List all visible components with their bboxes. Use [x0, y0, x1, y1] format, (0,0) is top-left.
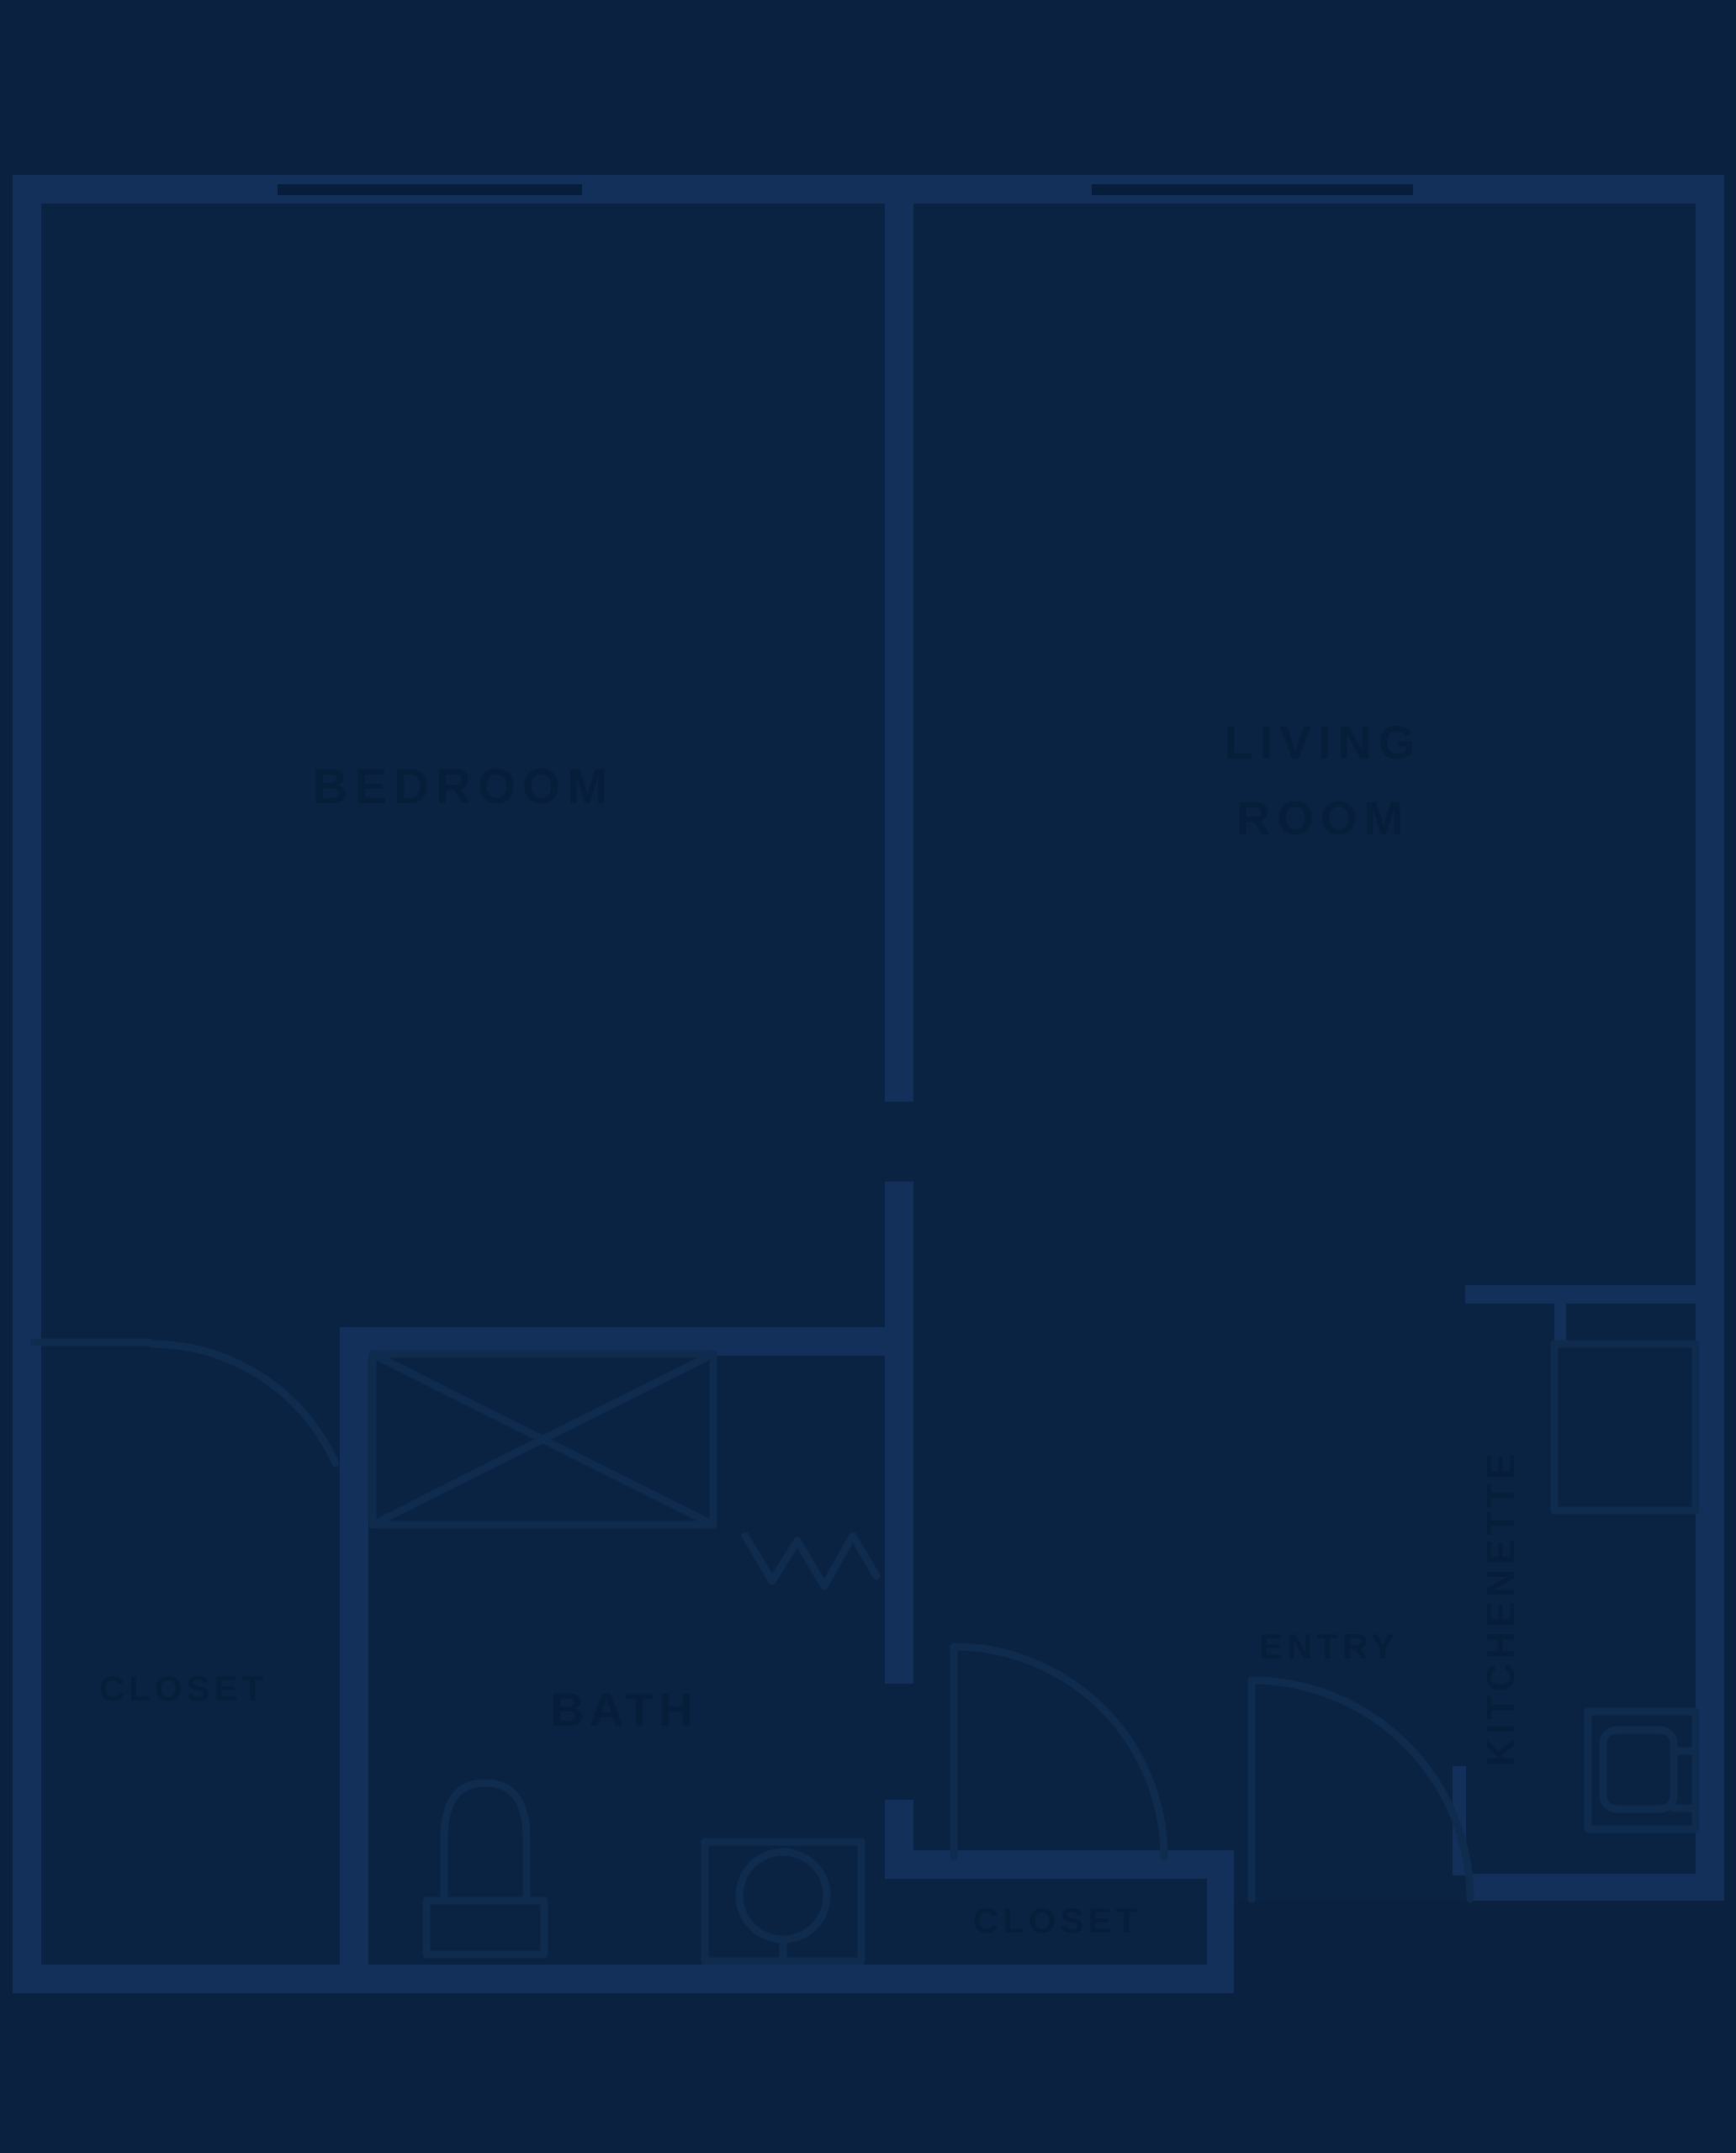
left-wall — [13, 175, 41, 1993]
entry-closet-label: CLOSET — [973, 1901, 1141, 1940]
bedroom-closet-label: CLOSET — [99, 1669, 267, 1708]
kitchenette-label: KITCHENETTE — [1479, 1450, 1522, 1767]
bath-label: BATH — [550, 1683, 697, 1736]
top-wall — [13, 175, 1724, 204]
kitchenette-top-wall — [1465, 1285, 1696, 1304]
hall-wall-stub — [885, 1800, 913, 1879]
entry-closet-right-wall — [1207, 1850, 1234, 1993]
living-room-window — [1092, 184, 1413, 195]
right-wall — [1696, 175, 1724, 1901]
bath-left-wall — [340, 1327, 368, 1965]
bedroom-living-wall-upper — [885, 204, 913, 1102]
living-room-label-line2: ROOM — [1236, 791, 1410, 844]
entry-label: ENTRY — [1259, 1627, 1399, 1666]
bottom-wall-left — [13, 1965, 1234, 1993]
bottom-wall-right — [1470, 1874, 1724, 1901]
kitchenette-connector-wall — [1554, 1304, 1566, 1346]
floor-plan-drawing: BEDROOM LIVING ROOM CLOSET BATH ENTRY KI… — [0, 0, 1736, 2153]
bedroom-living-wall-lower — [885, 1182, 913, 1684]
bedroom-window — [278, 184, 582, 195]
floor-area — [13, 175, 1724, 1993]
floor-plan: BEDROOM LIVING ROOM CLOSET BATH ENTRY KI… — [0, 0, 1736, 2153]
living-room-label-line1: LIVING — [1225, 716, 1422, 769]
bedroom-label: BEDROOM — [313, 759, 615, 814]
entry-closet-top-wall — [913, 1850, 1234, 1879]
